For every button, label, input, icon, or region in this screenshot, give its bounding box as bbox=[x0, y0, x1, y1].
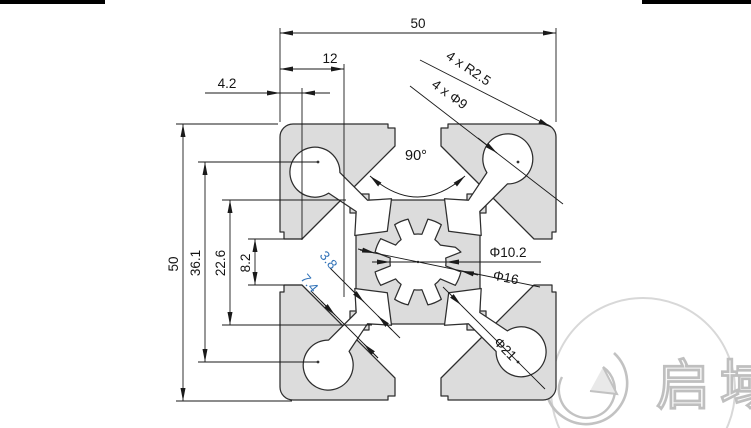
drawing-canvas: 启域 bbox=[0, 0, 751, 428]
label-bore-inner: Φ10.2 bbox=[489, 245, 526, 260]
label-angle-90: 90° bbox=[405, 148, 427, 164]
label-8-2: 8.2 bbox=[238, 254, 253, 273]
label-36-1: 36.1 bbox=[188, 250, 203, 276]
label-bore-outer: Φ16 bbox=[492, 268, 520, 288]
label-top-width: 50 bbox=[410, 16, 425, 31]
label-corner-hole: 4 x Φ9 bbox=[429, 77, 470, 113]
label-22-6: 22.6 bbox=[213, 250, 228, 276]
label-flange-4-2: 4.2 bbox=[218, 76, 237, 91]
technical-drawing: 启域 bbox=[0, 0, 751, 428]
label-offset-12: 12 bbox=[322, 51, 337, 66]
watermark-brand-text: 启域 bbox=[656, 356, 751, 416]
label-web-3-8: 3.8 bbox=[317, 248, 341, 272]
dim-slot-opening-8-2 bbox=[248, 239, 302, 285]
dim-angle-90-arc bbox=[370, 176, 465, 197]
label-left-height: 50 bbox=[166, 256, 181, 271]
label-corner-radius: 4 x R2.5 bbox=[443, 48, 493, 89]
